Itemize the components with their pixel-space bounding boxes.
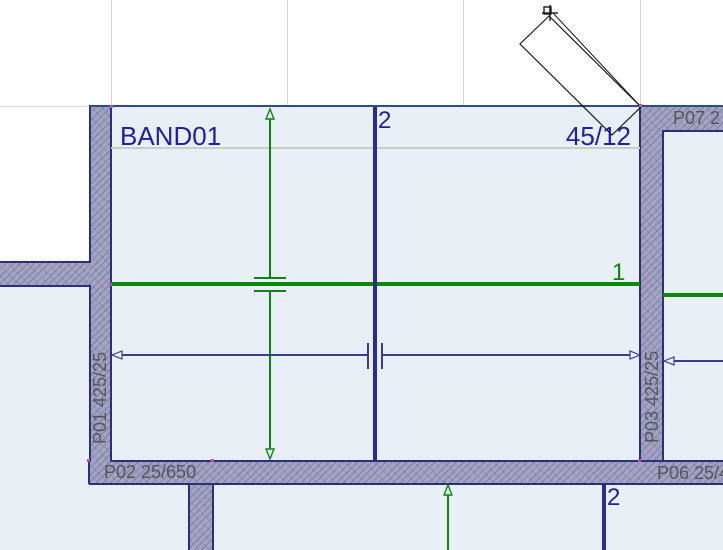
wall-edge-bottom-stub-left xyxy=(188,484,190,550)
beam-2-blue[interactable] xyxy=(373,107,377,461)
gridline-vertical-2 xyxy=(287,0,288,107)
snap-dot-bottom-stub xyxy=(211,459,214,462)
wall-p03-label: P03 425/25 xyxy=(643,351,661,443)
room-bottom-left xyxy=(0,484,189,550)
beam-green-right-room[interactable] xyxy=(663,293,723,297)
dim-horizontal-blue-left[interactable] xyxy=(117,354,368,356)
gridline-vertical-4 xyxy=(640,0,641,106)
wall-p02-label: P02 25/650 xyxy=(104,463,196,481)
dim-vertical-green-upper[interactable] xyxy=(269,116,271,278)
wall-edge-top xyxy=(89,105,723,107)
placement-preview-rubber-band xyxy=(553,13,641,107)
dim-blue-break-tick-left xyxy=(367,343,369,369)
gridline-vertical-3 xyxy=(463,0,464,107)
dim-horizontal-blue-right-room[interactable] xyxy=(670,360,723,362)
wall-p07-label: P07 2 xyxy=(673,109,720,127)
band-name-label: BAND01 xyxy=(120,123,221,149)
band-section-label: 45/12 xyxy=(500,123,631,149)
beam-2-lower-number-label: 2 xyxy=(607,486,620,510)
wall-edge-stub-top xyxy=(0,261,91,263)
dim-vertical-green-bottom-room[interactable] xyxy=(447,495,449,550)
dim-horizontal-blue-right[interactable] xyxy=(382,354,635,356)
wall-edge-bottom-left-cap xyxy=(88,461,90,484)
dim-blue-break-tick-right xyxy=(381,343,383,369)
gridline-vertical-1 xyxy=(111,0,112,107)
snap-dot-bottom-left xyxy=(87,459,90,462)
wall-edge-bottom-stub-right xyxy=(212,484,214,550)
beam-2-number-label: 2 xyxy=(378,109,391,133)
room-left-strip xyxy=(0,461,89,484)
drawing-canvas[interactable]: BAND01 45/12 2 1 2 P01 425/25 P02 25/650… xyxy=(0,0,723,550)
snap-dot-bottom-right xyxy=(638,459,641,462)
snap-dot-beam1-left xyxy=(109,283,112,286)
snap-dot-grid-left xyxy=(110,105,113,108)
dim-vertical-green-lower[interactable] xyxy=(269,291,271,455)
snap-dot-grid-right xyxy=(639,104,642,107)
wall-edge-bottom-bottom xyxy=(89,483,723,485)
gridline-horizontal-1 xyxy=(0,106,89,107)
dim-green-break-tick-top xyxy=(254,277,286,279)
wall-p01-label: P01 425/25 xyxy=(91,352,109,444)
crosshair-cursor-icon xyxy=(542,5,558,21)
room-bottom-right xyxy=(213,484,723,550)
dim-green-break-tick-bottom xyxy=(254,290,286,292)
wall-left-stub[interactable] xyxy=(0,262,89,286)
beam-1-number-label: 1 xyxy=(612,261,625,285)
wall-edge-stub-bottom xyxy=(0,285,91,287)
wall-edge-left-outer-upper xyxy=(89,107,91,262)
wall-bottom-stub[interactable] xyxy=(189,484,213,550)
wall-edge-bottom-top xyxy=(111,460,723,462)
room-left xyxy=(0,286,89,461)
wall-p06-label: P06 25/4 xyxy=(657,464,723,482)
beam-2-blue-lower[interactable] xyxy=(602,484,606,550)
wall-edge-top-right-inner xyxy=(662,130,723,132)
